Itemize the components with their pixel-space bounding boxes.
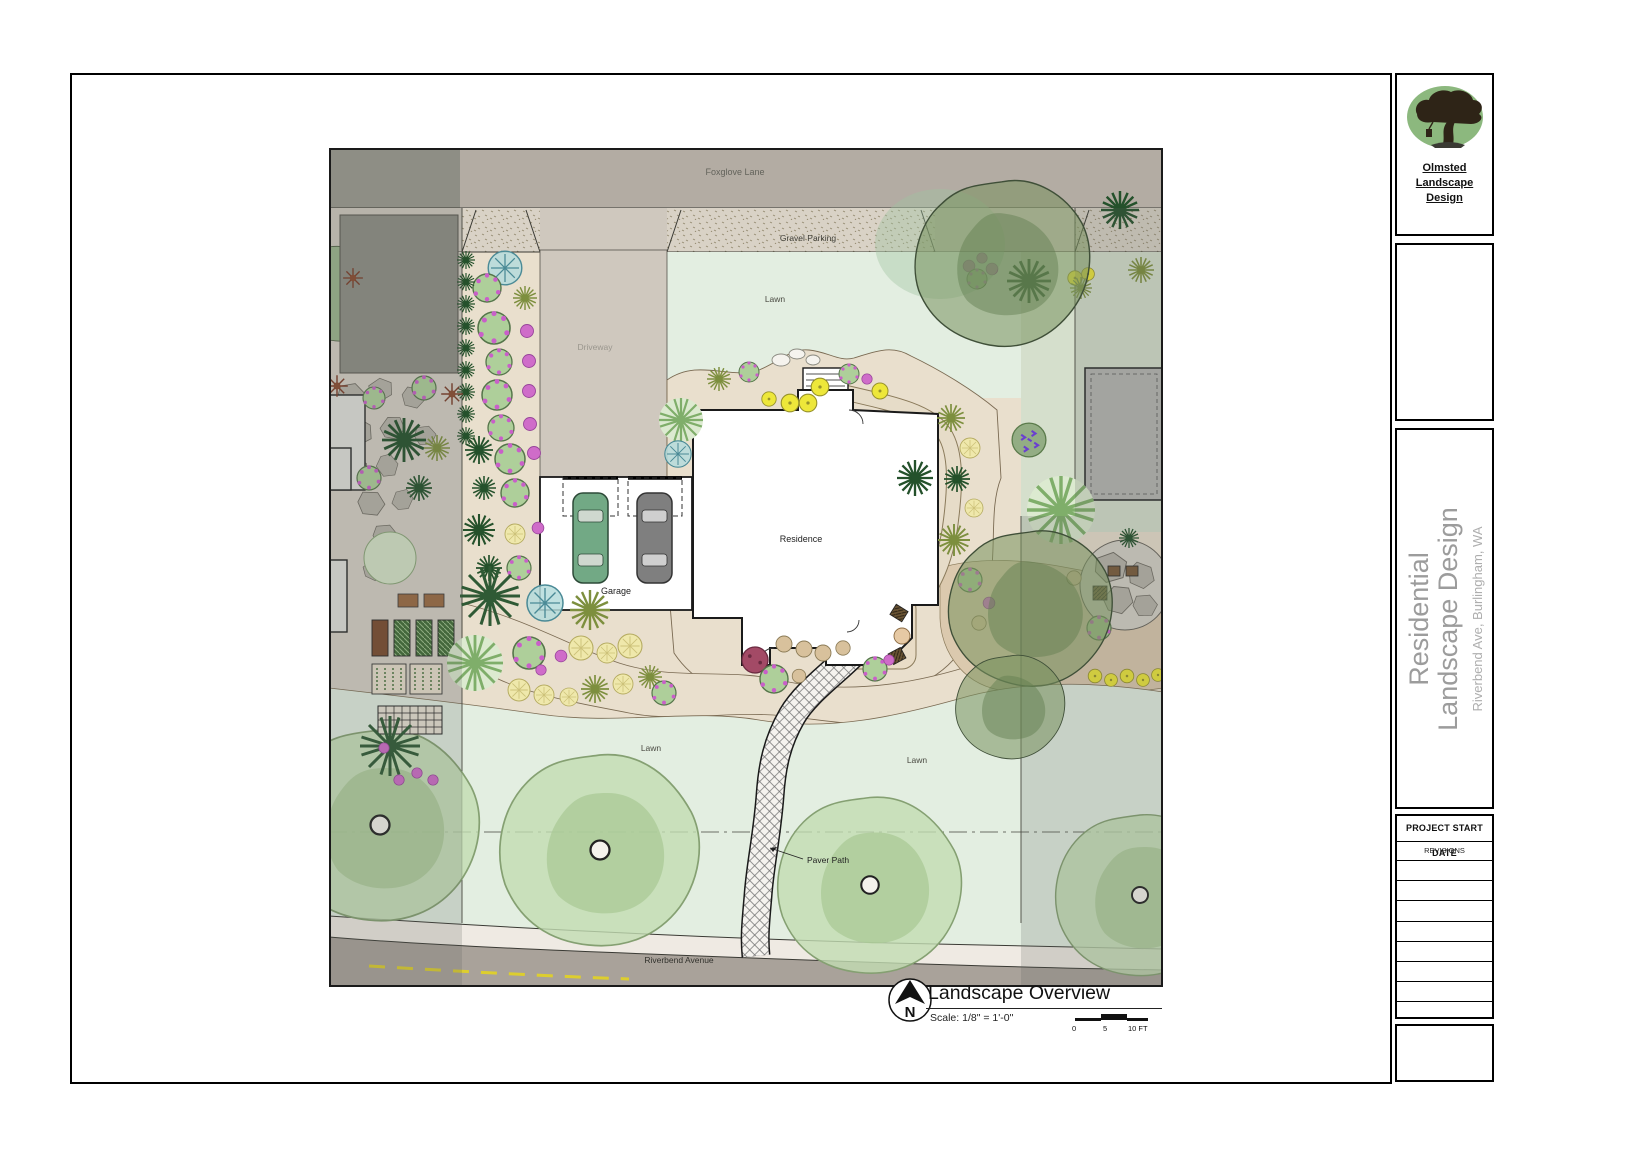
left-neighbor-shading <box>329 208 462 987</box>
label-lawn-front: Lawn <box>765 294 786 304</box>
revision-row <box>1397 962 1492 982</box>
label-foxglove-lane: Foxglove Lane <box>705 167 764 177</box>
drawing-sheet-page: Foxglove Lane Gravel Parking Lawn Drivew… <box>0 0 1650 1158</box>
label-driveway: Driveway <box>578 342 614 352</box>
scale-tick-5: 5 <box>1103 1024 1107 1033</box>
scale-bar-graphic <box>1070 1011 1165 1023</box>
project-title-line1: Residential <box>1404 507 1433 731</box>
title-block-empty-box-2 <box>1395 1024 1494 1082</box>
revisions-label: REVISIONS <box>1397 842 1492 861</box>
driveway-surface <box>540 250 667 477</box>
car-green <box>573 493 608 583</box>
car-gray <box>637 493 672 583</box>
north-arrow: N <box>887 977 933 1023</box>
title-block-empty-box-1 <box>1395 243 1494 421</box>
revision-row <box>1397 881 1492 901</box>
revision-row <box>1397 922 1492 942</box>
view-scale-text: Scale: 1/8" = 1'-0" <box>930 1012 1013 1024</box>
title-block-logo-box: Olmsted Landscape Design <box>1395 73 1494 236</box>
view-title-underline <box>926 1008 1162 1009</box>
revision-row <box>1397 942 1492 962</box>
north-label: N <box>905 1004 916 1021</box>
revision-row <box>1397 1002 1492 1021</box>
site-plan-drawing: Foxglove Lane Gravel Parking Lawn Drivew… <box>329 148 1163 987</box>
label-lawn-back-left: Lawn <box>641 743 662 753</box>
scale-tick-10ft: 10 FT <box>1128 1024 1148 1033</box>
label-residence: Residence <box>780 534 823 544</box>
title-block-revisions-box: PROJECT START DATE REVISIONS <box>1395 814 1494 1019</box>
title-block-project-title-box: Residential Landscape Design Riverbend A… <box>1395 428 1494 809</box>
label-gravel-parking: Gravel Parking <box>780 233 836 243</box>
company-name: Olmsted Landscape Design <box>1397 161 1492 206</box>
label-garage: Garage <box>601 586 631 596</box>
project-address: Riverbend Ave, Burlingham, WA <box>1470 507 1485 731</box>
label-paver-path: Paver Path <box>807 855 849 865</box>
company-logo <box>1403 84 1487 150</box>
revision-row <box>1397 982 1492 1002</box>
label-riverbend-avenue: Riverbend Avenue <box>644 955 714 965</box>
scale-tick-0: 0 <box>1072 1024 1076 1033</box>
project-start-date-label: PROJECT START DATE <box>1397 816 1492 842</box>
revision-row <box>1397 901 1492 921</box>
label-lawn-back-right: Lawn <box>907 755 928 765</box>
scale-bar: 0 5 10 FT <box>1070 1010 1165 1036</box>
view-title: Landscape Overview <box>928 982 1110 1005</box>
project-title-line2: Landscape Design <box>1434 507 1463 731</box>
